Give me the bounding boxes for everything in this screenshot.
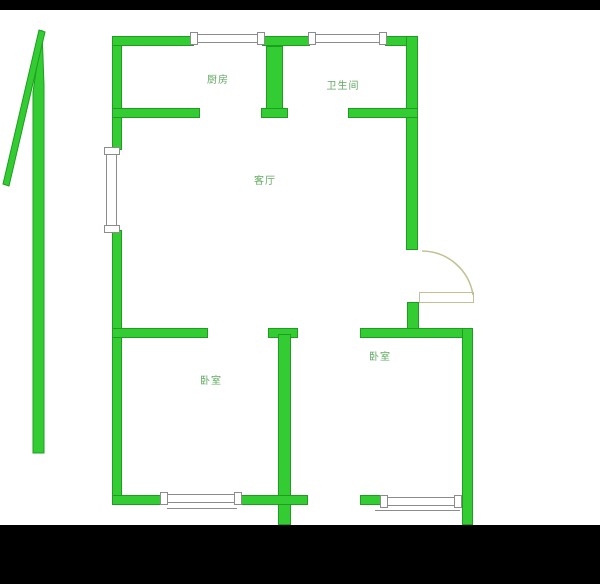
- entry-door-swing-arc: [422, 251, 473, 295]
- window-cap: [257, 32, 265, 45]
- letterbox-bottom: [0, 525, 600, 584]
- letterbox-top: [0, 0, 600, 10]
- window-living-left: [104, 147, 120, 233]
- window-pane: [387, 497, 455, 506]
- room-label-bedroom-right: 卧室: [356, 352, 404, 364]
- floor-plan: 厨房 卫生间 客厅 卧室 卧室: [0, 0, 600, 584]
- wall-mid-right: [360, 328, 472, 338]
- window-cap: [454, 495, 462, 508]
- room-label-living-room: 客厅: [241, 176, 289, 188]
- wall-bedroom-right-side: [462, 328, 473, 525]
- window-pane: [167, 494, 235, 503]
- entry-door-leaf: [419, 292, 474, 303]
- wall-left-lower: [112, 230, 122, 505]
- window-bedroom-right: [380, 495, 462, 508]
- wall-top-middle: [262, 36, 310, 46]
- wall-kitchen-bottom: [112, 108, 200, 118]
- window-sill-line: [375, 510, 460, 511]
- window-kitchen: [190, 32, 265, 45]
- window-cap: [234, 492, 242, 505]
- wall-top-left: [112, 36, 194, 46]
- window-cap: [379, 32, 387, 45]
- wall-bathroom-bottom: [348, 108, 418, 118]
- room-label-bathroom: 卫生间: [314, 81, 372, 93]
- wall-left-upper: [112, 36, 122, 150]
- wall-bottom-stub: [360, 495, 382, 505]
- north-arrow-icon: [3, 30, 45, 453]
- room-label-kitchen: 厨房: [194, 75, 242, 87]
- window-pane: [197, 34, 258, 43]
- wall-mid-left: [112, 328, 208, 338]
- window-sill-line: [167, 508, 237, 509]
- wall-bottom-center: [240, 495, 308, 505]
- wall-kitchen-bath-divider: [266, 46, 283, 110]
- wall-divider-foot: [261, 108, 288, 118]
- window-bathroom: [308, 32, 387, 45]
- window-pane: [315, 34, 380, 43]
- window-bedroom-left: [160, 492, 242, 505]
- window-pane: [106, 154, 117, 226]
- wall-bottom-left: [112, 495, 162, 505]
- room-label-bedroom-left: 卧室: [187, 376, 235, 388]
- window-cap: [104, 225, 120, 233]
- wall-right-upper: [406, 36, 418, 250]
